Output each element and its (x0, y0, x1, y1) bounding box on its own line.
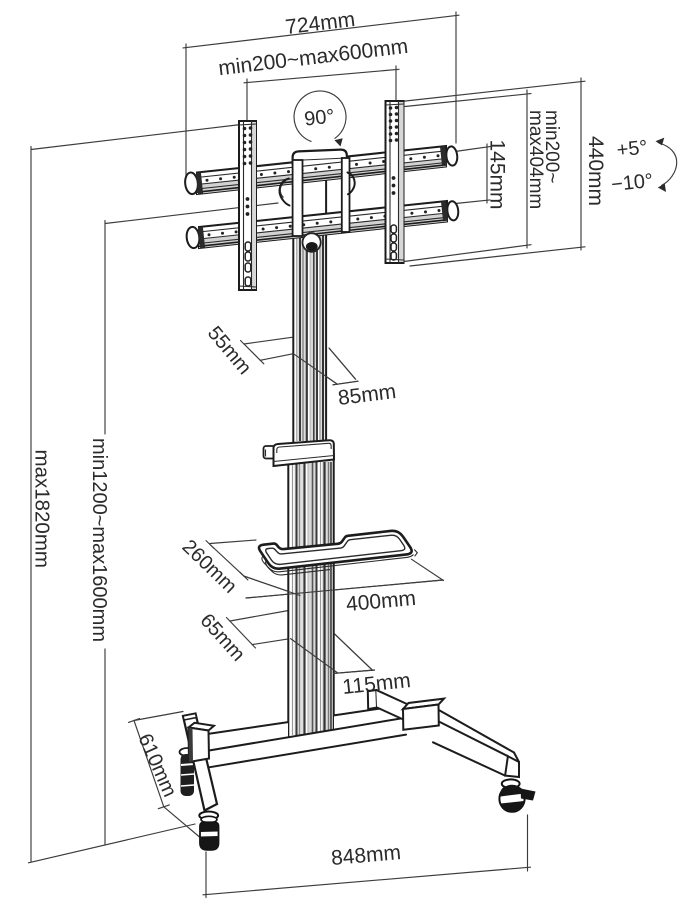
svg-text:+5°: +5° (616, 136, 649, 161)
svg-text:max1820mm: max1820mm (31, 450, 54, 569)
svg-text:440mm: 440mm (584, 136, 607, 206)
svg-text:min1200~max1600mm: min1200~max1600mm (88, 438, 110, 642)
svg-text:90°: 90° (303, 106, 335, 131)
svg-text:145mm: 145mm (486, 140, 509, 210)
svg-text:−10°: −10° (610, 170, 654, 196)
